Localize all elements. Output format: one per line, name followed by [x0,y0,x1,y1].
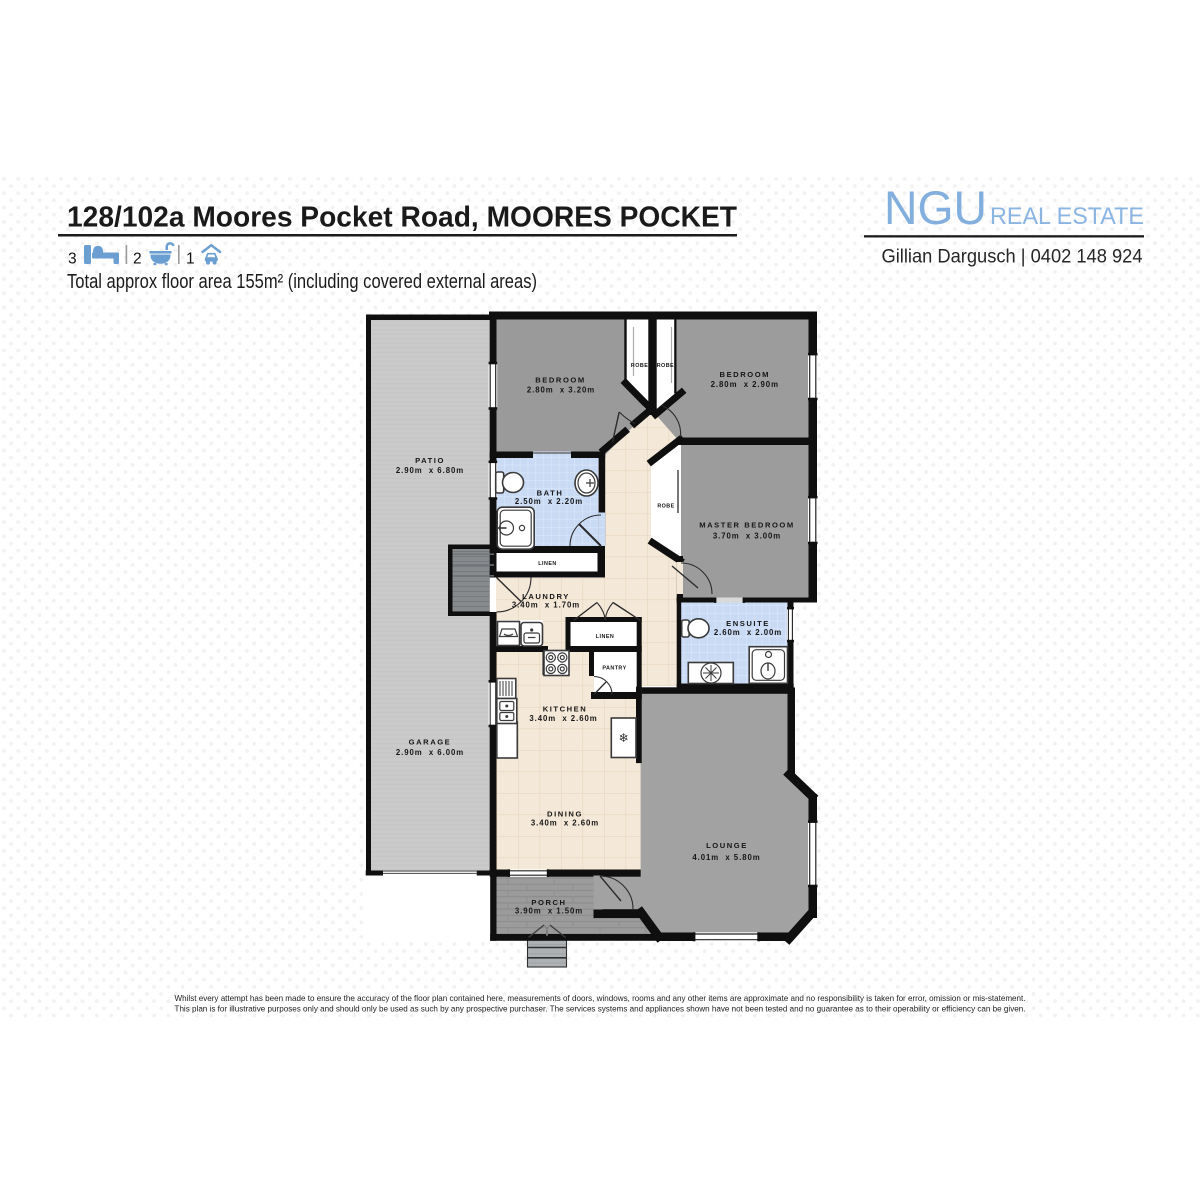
svg-text:2: 2 [133,251,142,268]
svg-text:ROBE: ROBE [657,504,674,510]
svg-text:3.40m x 2.60m: 3.40m x 2.60m [531,819,599,828]
svg-text:❄: ❄ [619,731,629,745]
svg-text:This plan is for illustrative: This plan is for illustrative purposes o… [175,1003,1026,1013]
svg-text:ROBE: ROBE [631,363,648,369]
svg-text:DINING: DINING [547,809,583,818]
svg-text:Gillian Dargusch | 0402 148 92: Gillian Dargusch | 0402 148 924 [882,247,1143,268]
svg-text:PANTRY: PANTRY [602,666,626,672]
svg-text:3.40m x 1.70m: 3.40m x 1.70m [512,601,580,610]
svg-text:BEDROOM: BEDROOM [720,370,771,379]
svg-text:Total approx floor area 155m²: Total approx floor area 155m² (including… [67,271,537,293]
svg-text:ROBE: ROBE [657,363,674,369]
svg-text:LAUNDRY: LAUNDRY [522,592,570,601]
svg-text:2.80m x 3.20m: 2.80m x 3.20m [527,385,595,394]
svg-text:NGU: NGU [884,181,987,234]
svg-text:LINEN: LINEN [596,634,614,640]
svg-text:4.01m x 5.80m: 4.01m x 5.80m [692,853,760,862]
svg-text:128/102a Moores Pocket Road, M: 128/102a Moores Pocket Road, MOORES POCK… [67,202,738,234]
svg-text:3: 3 [68,251,77,268]
svg-text:Whilst every attempt has been: Whilst every attempt has been made to en… [175,993,1026,1003]
svg-text:3.90m x 1.50m: 3.90m x 1.50m [515,907,583,916]
svg-text:ENSUITE: ENSUITE [726,619,770,628]
svg-text:2.90m x 6.80m: 2.90m x 6.80m [396,466,464,475]
svg-text:1: 1 [186,251,195,268]
svg-text:2.80m x 2.90m: 2.80m x 2.90m [711,380,779,389]
svg-text:REAL ESTATE: REAL ESTATE [990,203,1144,230]
svg-text:2.90m x 6.00m: 2.90m x 6.00m [396,748,464,757]
svg-text:KITCHEN: KITCHEN [543,705,588,714]
svg-text:GARAGE: GARAGE [409,738,452,747]
svg-text:2.50m x 2.20m: 2.50m x 2.20m [515,497,583,506]
svg-text:3.40m x 2.60m: 3.40m x 2.60m [529,714,597,723]
svg-text:3.70m x 3.00m: 3.70m x 3.00m [713,532,781,541]
svg-text:PATIO: PATIO [415,456,445,465]
svg-text:BEDROOM: BEDROOM [535,376,586,385]
svg-text:2.60m x 2.00m: 2.60m x 2.00m [714,628,782,637]
svg-text:LINEN: LINEN [538,561,556,567]
svg-text:MASTER BEDROOM: MASTER BEDROOM [699,521,795,530]
svg-text:LOUNGE: LOUNGE [706,841,748,850]
